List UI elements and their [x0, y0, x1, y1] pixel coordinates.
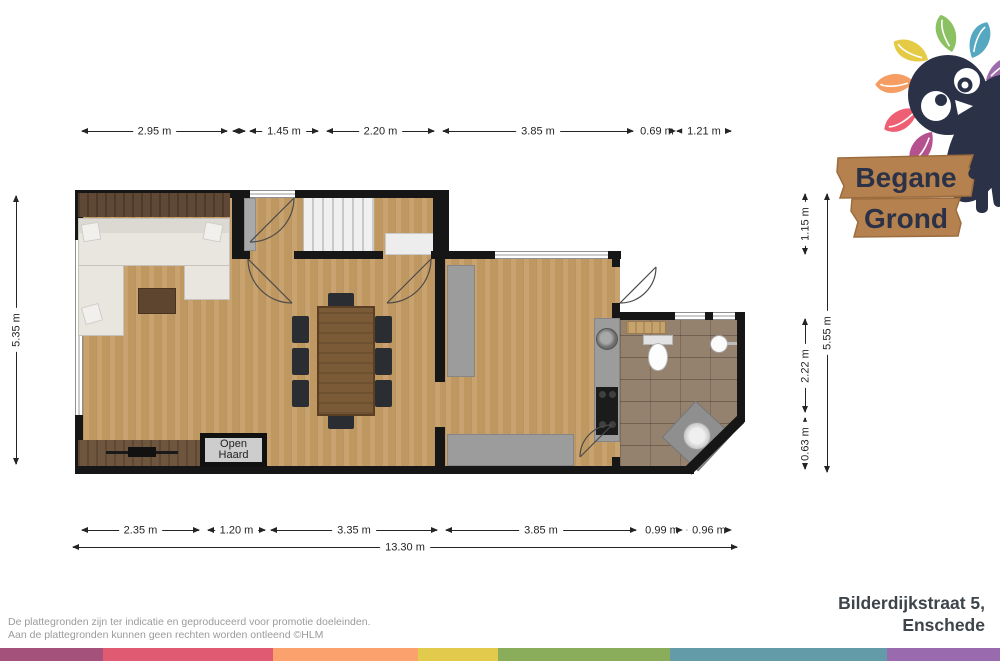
plan-overlay — [70, 185, 750, 485]
dim-top-6: 1.21 m — [676, 125, 732, 138]
dim-top-5: 0.69 m — [638, 125, 676, 138]
dim-top-2: 1.45 m — [249, 125, 319, 138]
stripe-segment — [103, 648, 273, 661]
disclaimer-line2: Aan de plattegronden kunnen geen rechten… — [8, 629, 371, 642]
dim-right-2: 2.22 m — [799, 318, 812, 413]
dim-top-1: 2.95 m — [81, 125, 228, 138]
dim-bottom-4: 3.85 m — [445, 524, 637, 537]
floorplan-page: Open Haard — [0, 0, 1000, 667]
stripe-segment — [670, 648, 887, 661]
door-arc-bathroom — [580, 425, 612, 457]
floor-title-sign: Begane Grond — [837, 155, 990, 237]
door-arc-dining — [387, 259, 431, 303]
address-line2: Enschede — [838, 614, 985, 636]
dim-right-1: 1.15 m — [799, 193, 812, 255]
dim-top-4: 3.85 m — [442, 125, 634, 138]
dim-left: 5.35 m — [10, 195, 23, 465]
address: Bilderdijkstraat 5, Enschede — [838, 592, 985, 636]
dim-bottom-5: 0.99 m — [641, 524, 683, 537]
disclaimer: De plattegronden zijn ter indicatie en g… — [8, 616, 371, 642]
color-stripe — [0, 648, 1000, 661]
dim-right-3: 0.63 m — [799, 417, 812, 470]
dim-bottom-2: 1.20 m — [207, 524, 266, 537]
floor-title-line2: Grond — [864, 203, 948, 234]
disclaimer-line1: De plattegronden zijn ter indicatie en g… — [8, 616, 371, 629]
floor-title-line1: Begane — [855, 162, 956, 193]
leaf-icon — [934, 14, 957, 54]
dim-top-3: 2.20 m — [326, 125, 435, 138]
dim-bottom-total: 13.30 m — [72, 541, 738, 554]
logo: Begane Grond — [828, 0, 1000, 245]
stripe-segment — [418, 648, 498, 661]
door-arc-front — [250, 198, 294, 242]
address-line1: Bilderdijkstraat 5, — [838, 592, 985, 614]
stripe-segment — [887, 648, 1000, 661]
dim-bottom-6: 0.96 m — [686, 524, 732, 537]
stripe-segment — [0, 648, 103, 661]
dim-top-wall — [232, 125, 246, 138]
door-arc-living — [248, 259, 292, 303]
door-arc-back — [620, 267, 656, 303]
floor-plan: Open Haard — [70, 185, 750, 485]
leaf-icon — [960, 19, 998, 61]
stripe-segment — [273, 648, 418, 661]
stripe-segment — [498, 648, 670, 661]
dim-bottom-3: 3.35 m — [270, 524, 438, 537]
mascot-eye — [921, 91, 951, 121]
wall-angled — [688, 419, 741, 471]
dim-bottom-1: 2.35 m — [81, 524, 200, 537]
